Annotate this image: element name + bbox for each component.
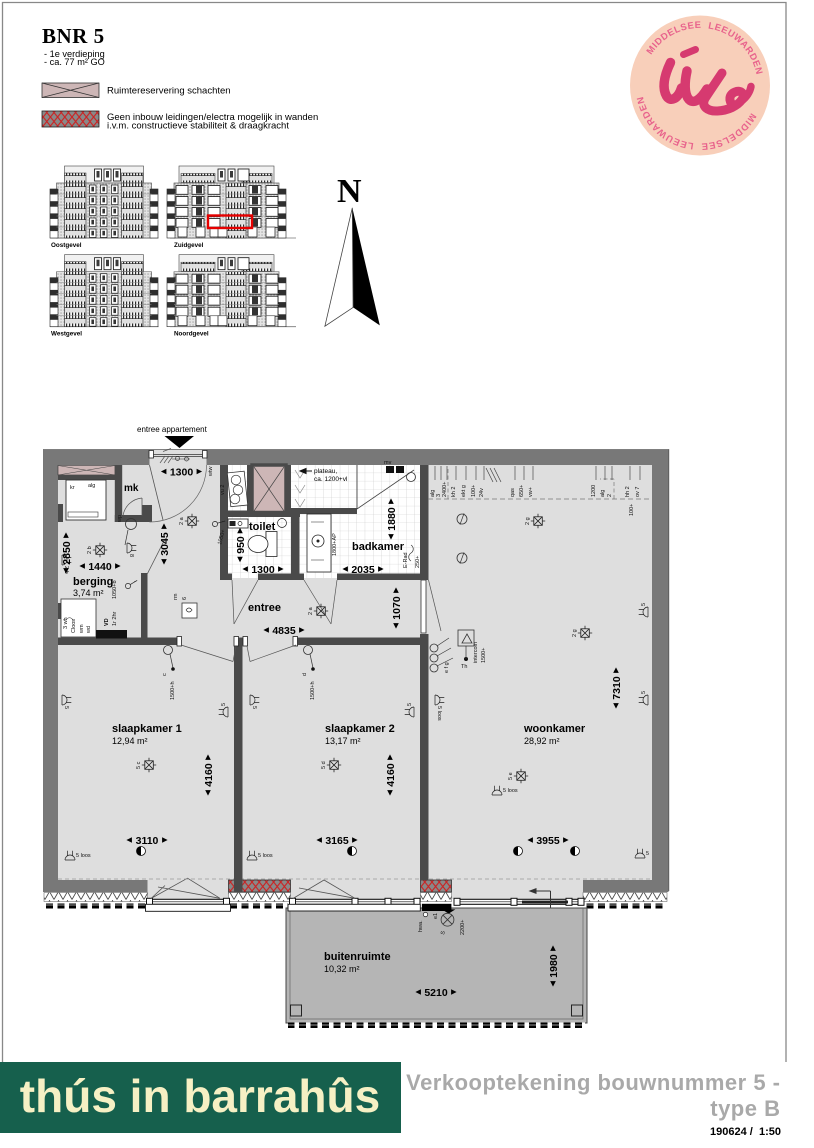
svg-text:BNR 5: BNR 5 [42,24,105,48]
svg-text:slaapkamer 1: slaapkamer 1 [112,723,182,735]
svg-text:Cloos: Cloos [71,619,77,633]
svg-text:Westgevel: Westgevel [51,331,82,338]
svg-text:kг: kг [70,485,75,491]
svg-text:hwa.: hwa. [418,920,424,932]
svg-text:28,92 m²: 28,92 m² [524,736,560,746]
svg-text:N: N [337,173,362,210]
svg-text:Noordgevel: Noordgevel [174,331,209,338]
svg-text:2 a: 2 a [308,606,314,615]
svg-text:2 a: 2 a [179,516,185,525]
svg-text:mk: mk [124,483,139,494]
svg-text:hh 2: hh 2 [625,486,631,497]
svg-text:1300: 1300 [170,466,194,478]
svg-text:3165: 3165 [325,835,349,847]
svg-text:5: 5 [63,706,69,709]
svg-text:13,17 m²: 13,17 m² [325,736,361,746]
svg-text:4835: 4835 [272,625,296,637]
svg-text:5210: 5210 [424,987,448,999]
svg-text:vu 2: vu 2 [220,485,226,495]
svg-text:entree: entree [248,602,281,614]
svg-text:100+: 100+ [629,504,635,516]
svg-text:berging: berging [73,576,113,588]
svg-text:950: 950 [235,536,247,554]
svg-text:Verkooptekening bouwnummer 5 -: Verkooptekening bouwnummer 5 - [406,1070,780,1095]
svg-text:650+: 650+ [519,485,525,497]
svg-text:5 loos: 5 loos [258,853,273,859]
svg-text:1070: 1070 [391,596,403,620]
svg-text:1500+h: 1500+h [310,681,316,700]
svg-text:thús in barrahûs: thús in barrahûs [20,1070,380,1122]
svg-text:5 loos: 5 loos [436,706,442,721]
svg-text:2 g: 2 g [525,517,531,525]
svg-text:- ca. 77 m² GO: - ca. 77 m² GO [44,57,105,67]
svg-text:3,74 m²: 3,74 m² [73,588,104,598]
svg-text:1500+h: 1500+h [170,681,176,700]
svg-text:wtw: wtw [208,467,214,478]
svg-text:Th: Th [461,664,467,670]
svg-text:2200+: 2200+ [460,920,466,935]
svg-text:3045: 3045 [159,532,171,556]
svg-text:5 loos: 5 loos [76,853,91,859]
svg-text:100+: 100+ [471,485,477,497]
svg-text:4160: 4160 [385,763,397,787]
svg-text:buitenruimte: buitenruimte [324,951,391,963]
svg-text:d: d [302,673,308,676]
svg-text:1980: 1980 [548,954,560,978]
svg-text:alg: alg [88,483,95,489]
svg-text:wp: wp [117,515,123,523]
svg-text:mv: mv [384,460,392,466]
svg-text:5: 5 [641,691,647,694]
svg-text:1300: 1300 [251,564,275,576]
svg-text:4160: 4160 [203,763,215,787]
svg-text:1r 2hr: 1r 2hr [112,611,118,626]
svg-text:toilet: toilet [249,521,276,533]
svg-text:5 c: 5 c [136,761,142,769]
svg-text:10,32 m²: 10,32 m² [324,964,360,974]
svg-text:wm: wm [79,624,85,634]
svg-text:2: 2 [607,494,613,497]
svg-text:2850: 2850 [61,541,73,565]
svg-text:2035: 2035 [351,564,375,576]
svg-text:ekt g: ekt g [461,485,467,497]
svg-text:24v: 24v [479,488,485,497]
svg-text:2400+: 2400+ [442,482,448,497]
svg-text:wd: wd [86,626,92,634]
svg-text:6: 6 [182,597,188,600]
svg-text:i.v.m. constructieve stabilite: i.v.m. constructieve stabiliteit & draag… [107,121,289,132]
svg-text:badkamer: badkamer [352,541,405,553]
svg-text:type B: type B [710,1096,780,1121]
svg-text:vw+: vw+ [528,487,534,497]
svg-text:1200: 1200 [591,485,597,497]
svg-text:Oostgevel: Oostgevel [51,242,82,249]
svg-text:8: 8 [128,554,134,557]
svg-text:e f g: e f g [444,662,450,673]
svg-text:5 loos: 5 loos [503,788,518,794]
svg-text:plateau,: plateau, [314,468,337,475]
svg-text:5: 5 [251,706,257,709]
svg-text:1500+: 1500+ [481,648,487,663]
svg-text:slaapkamer 2: slaapkamer 2 [325,723,395,735]
svg-text:3110: 3110 [136,835,159,847]
svg-text:3955: 3955 [536,835,560,847]
svg-text:intercom: intercom [473,641,479,663]
svg-text:Ruimtereservering schachten: Ruimtereservering schachten [107,86,231,97]
svg-text:kh 2: kh 2 [451,487,457,497]
svg-text:c: c [162,673,168,676]
svg-text:Zuidgevel: Zuidgevel [174,242,204,249]
svg-text:e1: e1 [433,913,439,919]
svg-text:rm: rm [173,593,179,600]
svg-text:entree appartement: entree appartement [137,425,208,434]
svg-text:qas: qas [510,488,516,497]
svg-text:250+: 250+ [415,556,421,568]
svg-text:2 g: 2 g [572,629,578,637]
svg-text:3 wh: 3 wh [63,617,69,629]
svg-text:E-Rad: E-Rad [403,552,409,568]
svg-text:12,94 m²: 12,94 m² [112,736,148,746]
svg-text:5: 5 [646,851,649,857]
svg-text:190624 / 1:50: 190624 / 1:50 [710,1126,781,1138]
svg-text:1880: 1880 [386,507,398,531]
svg-text:5 d: 5 d [321,761,327,769]
svg-text:5: 5 [221,703,227,706]
svg-text:7310: 7310 [611,676,623,700]
svg-text:1800+AP: 1800+AP [332,533,338,556]
svg-text:2 b: 2 b [87,546,93,554]
svg-text:5 e: 5 e [508,772,514,780]
svg-text:alg: alg [600,490,606,497]
svg-text:ov 7: ov 7 [635,487,641,497]
svg-text:5: 5 [641,603,647,606]
svg-text:VD: VD [104,618,110,626]
svg-text:ca. 1200+vl: ca. 1200+vl [314,476,348,483]
svg-text:1440: 1440 [88,561,112,573]
svg-text:5: 5 [407,703,413,706]
svg-text:woonkamer: woonkamer [523,723,586,735]
